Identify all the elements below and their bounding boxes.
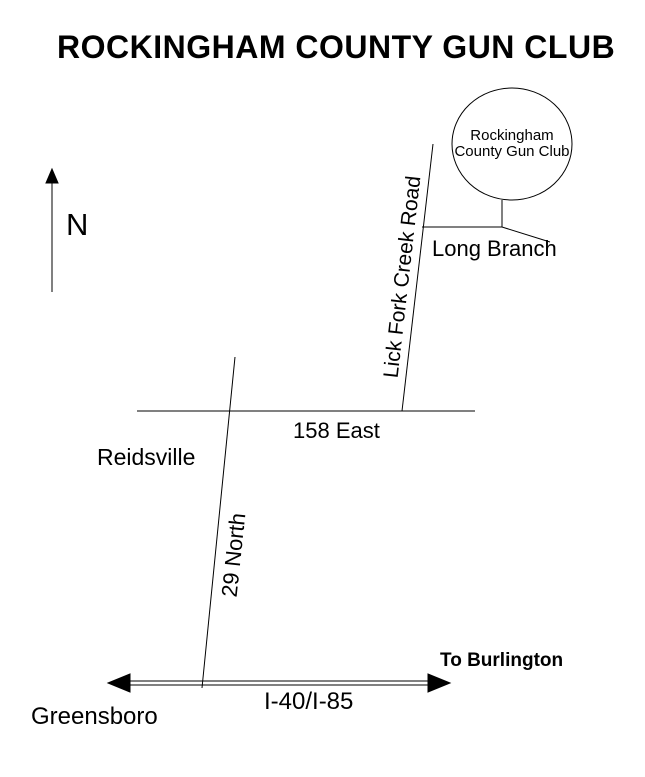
reidsville-city-label: Reidsville xyxy=(97,444,195,471)
gun-club-directions-map: ROCKINGHAM COUNTY GUN CLUB N Rockingham … xyxy=(0,0,645,777)
route-158-label: 158 East xyxy=(293,418,380,444)
interstate-label: I-40/I-85 xyxy=(264,688,353,716)
north-arrow-icon xyxy=(46,169,58,292)
club-name-line2: County Gun Club xyxy=(454,143,569,160)
greensboro-city-label: Greensboro xyxy=(31,703,158,731)
to-burlington-label: To Burlington xyxy=(440,650,563,672)
compass-north-label: N xyxy=(66,209,88,240)
club-circle-label: Rockingham County Gun Club xyxy=(454,128,569,160)
club-name-line1: Rockingham xyxy=(470,127,553,144)
interstate-west-arrowhead-icon xyxy=(108,674,130,692)
interstate-east-arrowhead-icon xyxy=(428,674,450,692)
map-title: ROCKINGHAM COUNTY GUN CLUB xyxy=(57,31,615,63)
long-branch-road-label: Long Branch xyxy=(432,236,557,262)
